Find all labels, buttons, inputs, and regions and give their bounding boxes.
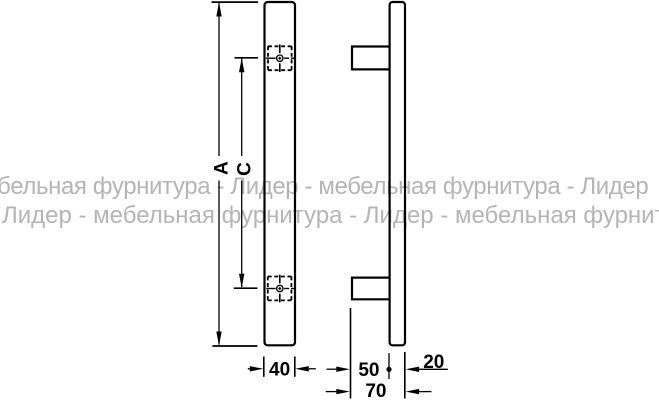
svg-text:70: 70 (365, 381, 386, 400)
svg-text:C: C (235, 162, 256, 176)
svg-text:40: 40 (269, 359, 290, 380)
svg-text:A: A (212, 161, 233, 175)
svg-text:20: 20 (423, 352, 444, 373)
svg-text:50: 50 (358, 360, 379, 381)
